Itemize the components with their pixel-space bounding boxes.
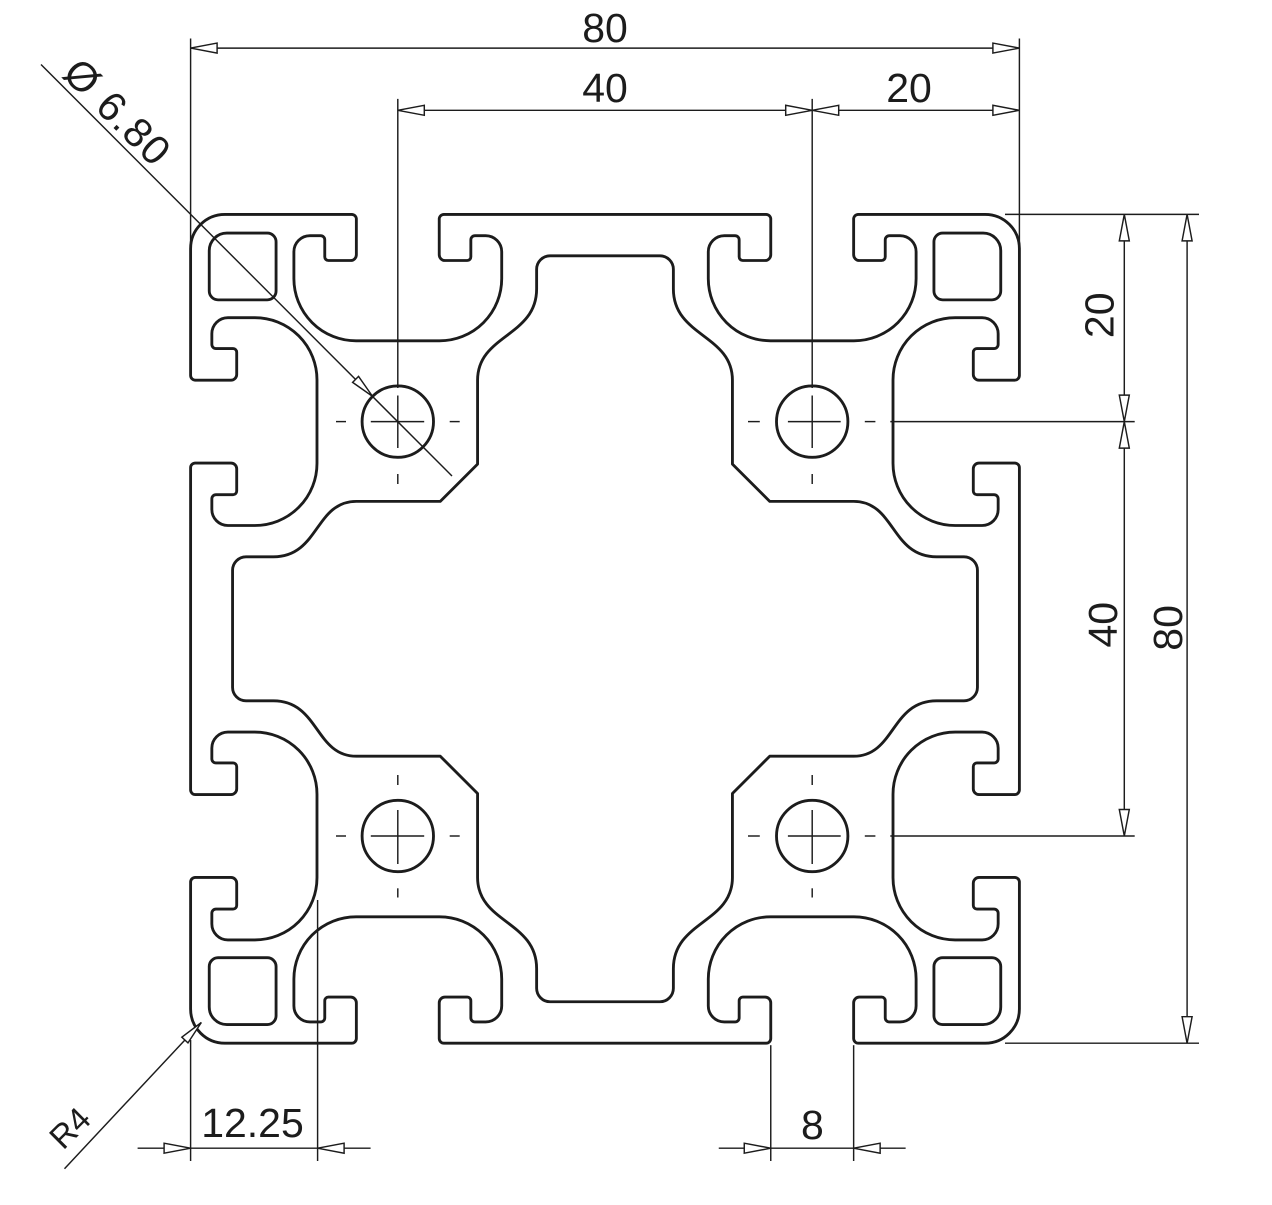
svg-text:8: 8 <box>801 1102 824 1148</box>
svg-text:80: 80 <box>582 5 628 51</box>
svg-text:20: 20 <box>1077 292 1123 338</box>
svg-text:40: 40 <box>1080 602 1126 648</box>
svg-text:40: 40 <box>582 65 628 111</box>
svg-text:12.25: 12.25 <box>201 1100 304 1146</box>
svg-text:20: 20 <box>886 65 932 111</box>
svg-text:80: 80 <box>1145 605 1191 651</box>
